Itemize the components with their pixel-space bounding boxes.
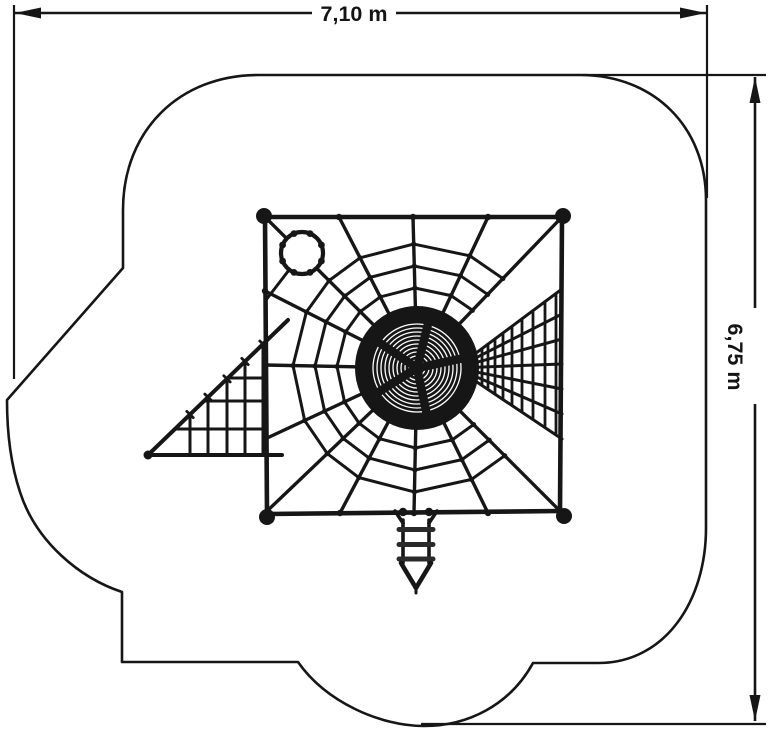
safety-area-outline <box>7 75 706 726</box>
arrowhead-left-icon <box>15 8 41 19</box>
height-dimension-label: 6,75 m <box>723 324 747 391</box>
width-dimension-label: 7,10 m <box>321 2 388 26</box>
arrowhead-down-icon <box>750 695 761 721</box>
arrowhead-up-icon <box>750 77 761 103</box>
access-ladder <box>395 508 437 593</box>
dimension-width: 7,10 m <box>14 2 707 379</box>
dimension-height: 6,75 m <box>421 75 766 724</box>
playground-plan-svg: 7,10 m 6,75 m <box>0 0 768 735</box>
climbing-net <box>144 208 573 593</box>
arrowhead-right-icon <box>680 8 706 19</box>
drawing-canvas: 7,10 m 6,75 m <box>0 0 768 735</box>
central-basket <box>355 306 479 430</box>
entry-ring <box>266 230 325 300</box>
net-tunnel-grid <box>474 289 562 439</box>
